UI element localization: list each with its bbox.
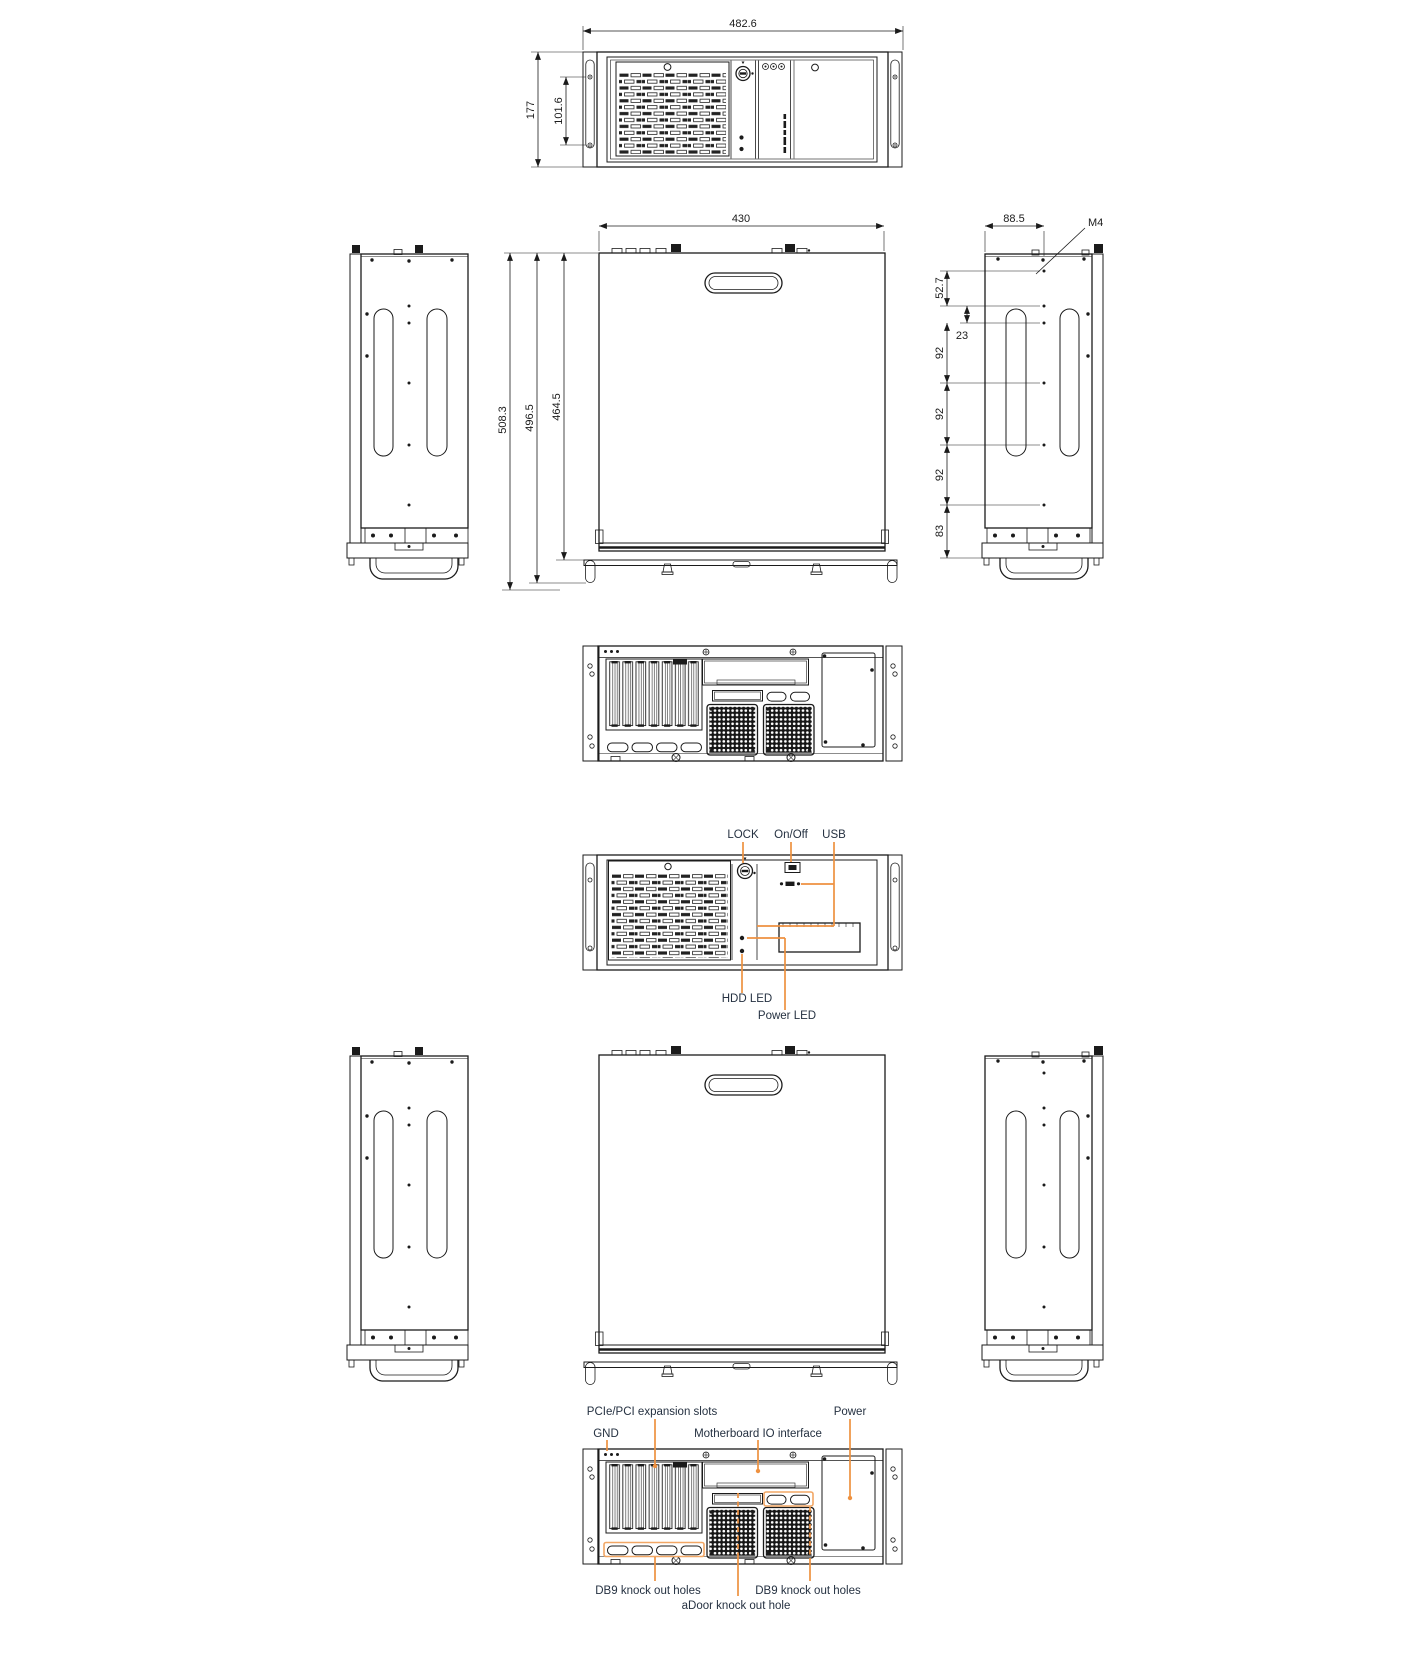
callout-usb-label: USB: [822, 829, 846, 841]
db9-knockouts-mid: [767, 692, 810, 701]
dim-side-hole-offset: 88.5: [1003, 213, 1024, 225]
dim-side-pitch-3: 92: [934, 469, 946, 481]
front-ports-icon: [763, 64, 785, 70]
dim-depth-mid: 496.5: [524, 404, 536, 432]
rack-ear-left: [583, 52, 597, 167]
led-indicators: [739, 135, 743, 151]
bay-brand-marking: [784, 114, 787, 153]
callout-hdd-led-label: HDD LED: [722, 993, 772, 1005]
front-view-annotated: LOCK On/Off USB HDD LED Power LED: [583, 829, 902, 1022]
dim-side-hole-gap: 23: [956, 330, 968, 342]
rear-edge-connectors: [612, 244, 810, 253]
led-indicators: [740, 936, 744, 953]
power-switch-icon: [785, 863, 800, 873]
dim-top-width: 430: [732, 213, 750, 225]
dim-side-top-offset: 52.7: [934, 277, 946, 298]
dim-front-handle-span: 101.6: [553, 97, 565, 125]
fan-grille-left: [707, 705, 758, 756]
top-view-dimensions: 430 508.3 496.5 464.5: [497, 213, 884, 590]
psu-area: [822, 653, 875, 747]
dim-front-width: 482.6: [729, 18, 757, 30]
front-recess: [779, 923, 860, 952]
top-view: [584, 244, 897, 583]
rear-view-annotated: [583, 1449, 902, 1565]
rack-ear-left: [583, 855, 597, 970]
rack-ear-left: [583, 646, 599, 761]
dim-front-height: 177: [525, 101, 537, 119]
dim-depth-body: 464.5: [551, 393, 563, 421]
lock-icon: [738, 858, 756, 879]
side-slot-cutout: [1006, 309, 1026, 456]
usb-port-icon: [780, 882, 800, 886]
callout-adoor-label: aDoor knock out hole: [682, 1600, 791, 1612]
dim-side-pitch-1: 92: [934, 347, 946, 359]
ground-screws: [604, 650, 619, 653]
top-view-plain: [584, 1046, 897, 1385]
side-view-dimensions: 88.5 M4 52.7 23 92 92 92 83: [934, 213, 1103, 558]
dim-side-pitch-2: 92: [934, 408, 946, 420]
fan-grille-right: [764, 705, 815, 756]
side-view-left-plain: [347, 1047, 468, 1381]
motherboard-io-area: [703, 659, 809, 685]
dim-thread-callout: M4: [1088, 217, 1103, 229]
callout-power-label: Power: [834, 1406, 867, 1418]
callout-onoff-label: On/Off: [774, 829, 808, 841]
screw-holes: [365, 258, 453, 506]
db9-knockouts-bottom: [608, 743, 702, 752]
db25-knockout: [713, 691, 763, 702]
callout-lock-label: LOCK: [727, 829, 759, 841]
side-slot-cutout: [374, 309, 393, 456]
thumbscrew-icon: [812, 64, 819, 71]
callout-db9-left-label: DB9 knock out holes: [595, 1585, 701, 1597]
carry-handle: [370, 558, 458, 579]
callout-mb-io-label: Motherboard IO interface: [694, 1428, 822, 1440]
callout-gnd-label: GND: [593, 1428, 619, 1440]
side-view-left: [347, 245, 468, 579]
side-view-right-plain: [982, 1046, 1103, 1381]
expansion-slots: [606, 659, 702, 731]
vent-grille: [616, 62, 729, 156]
callout-power-led-label: Power LED: [758, 1010, 816, 1022]
front-callouts: LOCK On/Off USB HDD LED Power LED: [722, 829, 846, 1022]
rear-view: [583, 646, 902, 762]
vent-grille: [609, 861, 731, 960]
callout-db9-right-label: DB9 knock out holes: [755, 1585, 861, 1597]
dim-side-bottom-offset: 83: [934, 525, 946, 537]
lock-icon: [736, 62, 754, 81]
drawing-page: 482.6 177 101.6: [0, 0, 1428, 1673]
side-slot-cutout: [427, 309, 447, 456]
handle-cutout: [705, 273, 782, 293]
callout-expansion-label: PCIe/PCI expansion slots: [587, 1406, 718, 1418]
side-view-right: [982, 244, 1103, 579]
rack-ear-right: [886, 646, 902, 761]
top-rail-screws: [703, 649, 796, 655]
dim-depth-overall: 508.3: [497, 406, 509, 434]
screw-holes: [996, 257, 1089, 506]
rack-ear-right: [888, 52, 902, 167]
front-view-dimensioned: 482.6 177 101.6: [525, 18, 903, 167]
carry-handle: [1000, 558, 1088, 579]
side-slot-cutout: [1060, 309, 1079, 456]
rack-ear-right: [888, 855, 902, 970]
